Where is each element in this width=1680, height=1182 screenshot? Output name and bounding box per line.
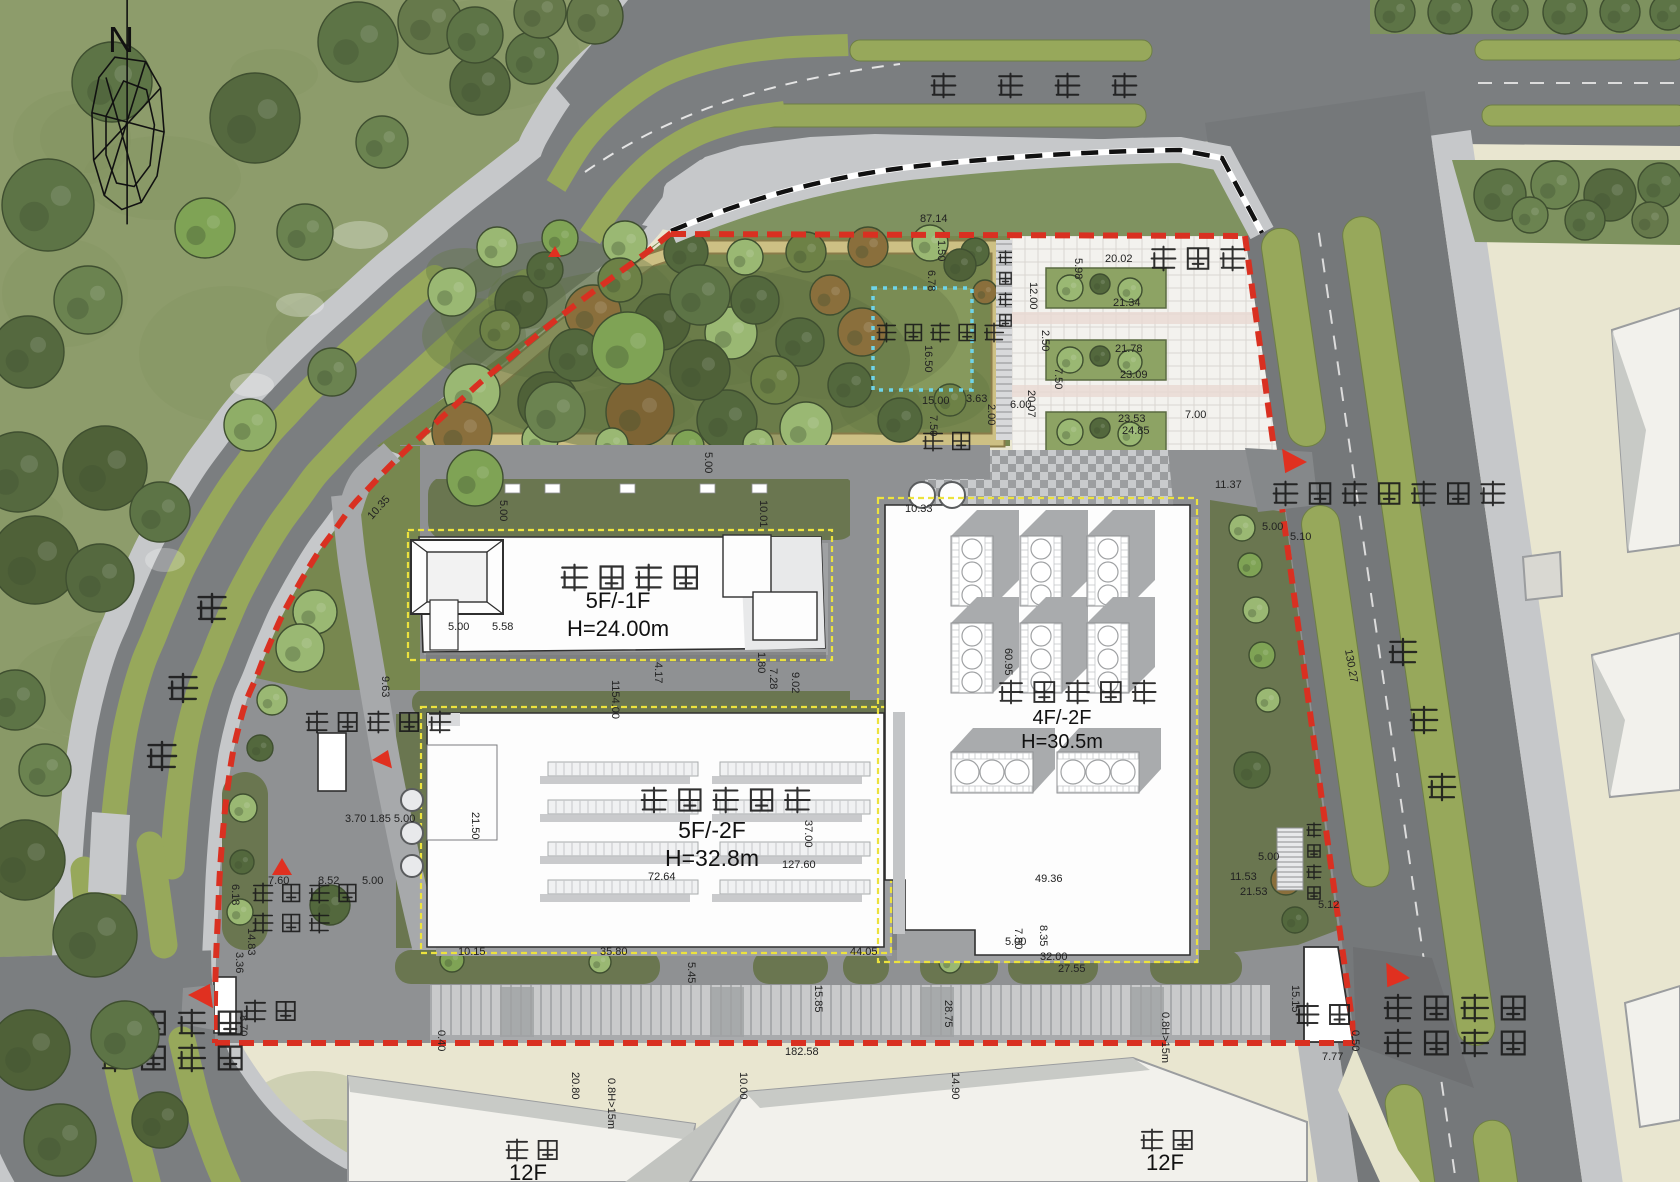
svg-text:12F: 12F (509, 1160, 547, 1182)
svg-text:27.55: 27.55 (1058, 963, 1086, 975)
svg-text:14.90: 14.90 (949, 1072, 961, 1100)
svg-text:15.85: 15.85 (812, 985, 824, 1013)
svg-text:N: N (108, 19, 134, 60)
svg-text:5.00: 5.00 (497, 500, 509, 521)
svg-text:5.12: 5.12 (1318, 899, 1339, 911)
svg-text:7.50: 7.50 (1052, 368, 1064, 389)
svg-text:0.8H>15m: 0.8H>15m (1159, 1012, 1171, 1063)
svg-text:21.78: 21.78 (1115, 343, 1143, 355)
svg-text:16.50: 16.50 (922, 345, 934, 373)
svg-text:7.00: 7.00 (1185, 409, 1206, 421)
svg-text:72.64: 72.64 (648, 871, 676, 883)
svg-text:87.14: 87.14 (920, 213, 948, 225)
svg-text:44.05: 44.05 (850, 946, 878, 958)
svg-text:7.28: 7.28 (767, 668, 779, 689)
svg-text:15.15: 15.15 (1289, 985, 1301, 1013)
svg-text:37.00: 37.00 (802, 820, 814, 848)
svg-text:5F/-2F: 5F/-2F (678, 817, 746, 843)
svg-text:23.53: 23.53 (1118, 413, 1146, 425)
svg-text:35.80: 35.80 (600, 946, 628, 958)
svg-text:8.52: 8.52 (318, 875, 339, 887)
svg-text:7.50: 7.50 (927, 415, 939, 436)
svg-text:10.33: 10.33 (905, 503, 933, 515)
svg-text:21.34: 21.34 (1113, 297, 1141, 309)
svg-text:3.36: 3.36 (233, 952, 245, 973)
svg-text:5.00: 5.00 (1258, 851, 1279, 863)
svg-text:12.00: 12.00 (1027, 282, 1039, 310)
svg-text:11.53: 11.53 (1230, 871, 1257, 883)
svg-text:10.15: 10.15 (458, 946, 486, 958)
svg-text:9.02: 9.02 (789, 672, 801, 693)
svg-text:32.00: 32.00 (1040, 951, 1068, 963)
svg-text:5.10: 5.10 (1290, 531, 1311, 543)
svg-text:1.80: 1.80 (755, 652, 767, 673)
svg-text:11.37: 11.37 (1215, 479, 1242, 491)
svg-text:60.95: 60.95 (1002, 648, 1014, 676)
svg-text:10.00: 10.00 (737, 1072, 749, 1100)
svg-text:12F: 12F (1146, 1150, 1184, 1175)
svg-text:8.35: 8.35 (1037, 925, 1049, 946)
svg-text:8.70: 8.70 (237, 1015, 249, 1036)
svg-text:15.00: 15.00 (922, 395, 950, 407)
svg-text:21.50: 21.50 (469, 812, 481, 840)
svg-text:28.75: 28.75 (942, 1000, 954, 1028)
svg-text:3.70 1.85 5.00: 3.70 1.85 5.00 (345, 813, 415, 825)
svg-text:H=32.8m: H=32.8m (665, 845, 759, 871)
svg-text:23.09: 23.09 (1120, 369, 1148, 381)
svg-text:0.40: 0.40 (435, 1030, 447, 1051)
svg-text:14.83: 14.83 (245, 928, 257, 956)
svg-text:6.78: 6.78 (925, 270, 937, 291)
svg-text:9.63: 9.63 (379, 676, 391, 697)
svg-text:7.77: 7.77 (1322, 1051, 1343, 1063)
svg-text:6.18: 6.18 (229, 884, 241, 905)
svg-text:2.50: 2.50 (1039, 330, 1051, 351)
svg-text:49.36: 49.36 (1035, 873, 1063, 885)
svg-text:5.45: 5.45 (685, 962, 697, 983)
svg-text:5.98: 5.98 (1072, 258, 1084, 279)
svg-text:20.02: 20.02 (1105, 253, 1133, 265)
svg-text:10.01: 10.01 (757, 500, 769, 528)
svg-text:182.58: 182.58 (785, 1046, 819, 1058)
svg-text:127.60: 127.60 (782, 859, 816, 871)
svg-text:1.50: 1.50 (935, 240, 947, 261)
svg-text:21.53: 21.53 (1240, 886, 1268, 898)
svg-text:7.60: 7.60 (268, 875, 289, 887)
svg-text:5F/-1F: 5F/-1F (586, 588, 651, 613)
svg-text:6.00: 6.00 (1010, 399, 1031, 411)
svg-text:5.00: 5.00 (702, 452, 714, 473)
svg-text:20.80: 20.80 (569, 1072, 581, 1100)
svg-text:5.00: 5.00 (362, 875, 383, 887)
svg-text:3.63: 3.63 (966, 393, 987, 405)
svg-text:4F/-2F: 4F/-2F (1033, 707, 1092, 729)
svg-text:4.17: 4.17 (652, 662, 664, 683)
svg-text:1154.00: 1154.00 (609, 680, 621, 719)
svg-text:0.8H>15m: 0.8H>15m (605, 1078, 617, 1129)
svg-text:5.00: 5.00 (1005, 936, 1026, 948)
svg-text:H=24.00m: H=24.00m (567, 616, 669, 641)
svg-text:5.58: 5.58 (492, 621, 513, 633)
svg-text:5.00: 5.00 (448, 621, 469, 633)
svg-text:24.85: 24.85 (1122, 425, 1150, 437)
svg-text:H=30.5m: H=30.5m (1021, 731, 1103, 753)
svg-text:2.00: 2.00 (985, 404, 997, 425)
svg-text:5.00: 5.00 (1262, 521, 1283, 533)
svg-text:0.50: 0.50 (1349, 1030, 1361, 1051)
